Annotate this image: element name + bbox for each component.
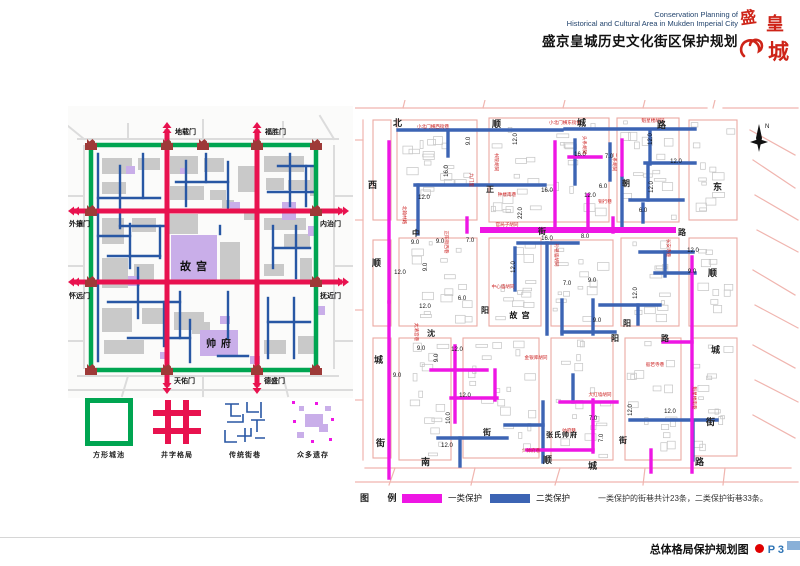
- building-block: [166, 214, 198, 234]
- street-width-label: 12.0: [418, 195, 430, 201]
- street-width-label: 9.0: [688, 269, 697, 275]
- lane-name-label: 般若寺巷: [646, 361, 665, 368]
- street-width-label: 12.0: [513, 133, 519, 145]
- lane-name-label: 铜行巷: [598, 198, 612, 205]
- street-width-label: 6.0: [639, 208, 648, 214]
- edge-road-char: 北: [393, 117, 402, 128]
- gate-label: 抚近门: [320, 291, 341, 300]
- edge-road-char: 城: [588, 460, 597, 471]
- city-block: [399, 338, 451, 460]
- street-name-char: 阳: [611, 334, 619, 343]
- edge-road-char: 路: [695, 456, 705, 467]
- compass-n-label: N: [765, 124, 769, 130]
- street-width-label: 9.0: [393, 373, 402, 379]
- street-name-char: 街: [482, 427, 491, 437]
- gate-label: 地载门: [175, 127, 196, 136]
- street-width-label: 12.0: [394, 270, 406, 276]
- street-width-label: 12.0: [670, 159, 682, 165]
- street-width-label: 6.0: [599, 184, 608, 190]
- relic-patch: [318, 306, 325, 315]
- street-width-label: 12.0: [419, 304, 431, 310]
- street-width-label: 8.0: [581, 234, 590, 240]
- building-block: [238, 166, 256, 192]
- street-name-char: 正: [486, 185, 494, 194]
- lane-name-label: 二条胡同: [611, 153, 618, 172]
- lane-name-label: 金银库胡同: [525, 354, 548, 361]
- landmark-label: 帅 府: [206, 337, 232, 350]
- edge-road-char: 街: [705, 416, 715, 427]
- street-width-label: 12.0: [664, 409, 676, 415]
- lane-name-label: 九门里: [468, 173, 475, 187]
- street-width-label: 12.0: [687, 248, 699, 254]
- header-english-line2: Historical and Cultural Area in Mukden I…: [378, 19, 738, 28]
- landmark-label: 故 宫: [180, 259, 208, 273]
- shengjing-huangcheng-logo: 盛 皇 城: [738, 4, 794, 70]
- edge-road-char: 城: [577, 117, 586, 128]
- legend-caption: 方形城池: [80, 450, 138, 460]
- lane-name-label: 头条胡同: [581, 136, 588, 155]
- edge-road-char: 顺: [543, 455, 552, 465]
- legend-caption: 众多遗存: [284, 450, 342, 460]
- footer-title: 总体格局保护规划图: [650, 544, 749, 556]
- edge-road-char: 顺: [708, 268, 717, 278]
- gate-label: 怀远门: [68, 291, 90, 300]
- legend-item-lanes: 传统街巷: [216, 398, 274, 460]
- street-width-label: 7.0: [589, 416, 598, 422]
- gate-label: 福胜门: [264, 127, 286, 136]
- street-name-char: 阳: [623, 319, 631, 328]
- gate-label: 外攘门: [69, 219, 90, 228]
- street-name-char: 路: [678, 227, 687, 237]
- lane-name-label: 钟楼南巷: [498, 191, 517, 198]
- grid-swatch: [153, 398, 201, 446]
- logo-char-sheng: 盛: [738, 3, 757, 29]
- building-block: [102, 182, 126, 194]
- lane-name-label: 北翰林路: [401, 206, 408, 225]
- street-name-char: 朝: [622, 178, 630, 188]
- relic-patch: [126, 166, 135, 174]
- building-block: [266, 178, 284, 190]
- building-block: [298, 336, 314, 354]
- lane-name-label: 书院胡同: [493, 153, 500, 172]
- street-width-label: 12.0: [633, 287, 639, 299]
- street-name-char: 阳: [481, 306, 489, 315]
- edge-road-char: 南: [421, 456, 430, 467]
- landmark-label: 故 宫: [509, 310, 530, 320]
- logo-char-huang: 皇: [766, 10, 784, 36]
- city-block: [625, 338, 681, 460]
- footer-blue-bar: [787, 541, 800, 550]
- street-width-label: 16.0: [541, 188, 553, 194]
- legend-item-square: 方形城池: [80, 398, 138, 460]
- street-width-label: 9.0: [588, 278, 597, 284]
- legend-item-relics: 众多遗存: [284, 398, 342, 460]
- street-width-label: 9.0: [423, 262, 429, 271]
- header-english-line1: Conservation Planning of: [378, 10, 738, 19]
- protection-plan-map: 9.012.016.07.012.012.016.012.016.012.06.…: [355, 100, 800, 490]
- footer: 总体格局保护规划图P 3: [650, 541, 784, 557]
- building-block: [300, 258, 312, 282]
- schematic-city-map: 地载门福胜门外攘门内治门怀远门抚近门天佑门德盛门故 宫帅 府: [68, 106, 353, 398]
- class1-label: 一类保护: [448, 493, 482, 503]
- footer-red-dot-icon: [755, 544, 764, 553]
- street-width-label: 12.0: [584, 193, 596, 199]
- logo-swirl-icon: [738, 34, 764, 62]
- lane-name-label: 正阳街西巷: [443, 231, 450, 254]
- street-width-label: 12.0: [459, 393, 471, 399]
- street-width-label: 9.0: [466, 136, 472, 145]
- street-width-label: 16.0: [541, 236, 553, 242]
- relics-swatch: [289, 398, 337, 446]
- square-swatch: [85, 398, 133, 446]
- landmark-label: 张氏帅府: [546, 430, 578, 439]
- logo-char-cheng: 城: [768, 36, 789, 66]
- legend-caption: 井字格局: [148, 450, 206, 460]
- legend-caption: 传统街巷: [216, 450, 274, 460]
- street-width-label: 9.0: [593, 318, 602, 324]
- street-name-char: 中: [412, 228, 420, 238]
- city-block: [397, 120, 477, 220]
- city-block: [399, 238, 477, 326]
- footer-divider: [0, 537, 800, 538]
- class1-color-swatch: [402, 494, 442, 503]
- building-block: [264, 156, 304, 172]
- street-name-char: 沈: [427, 328, 435, 338]
- lane-name-label: 官局子胡同: [496, 221, 519, 228]
- lane-name-label: 中心庙胡同: [492, 283, 515, 290]
- edge-road-char: 顺: [372, 258, 381, 268]
- street-width-label: 9.0: [417, 346, 426, 352]
- header: Conservation Planning of Historical and …: [378, 10, 738, 50]
- city-block: [551, 240, 613, 326]
- building-block: [104, 340, 144, 354]
- edge-road-char: 城: [711, 344, 720, 355]
- lane-name-label: 魁星楼南巷: [691, 387, 698, 410]
- street-name-char: 街: [537, 226, 546, 236]
- street-width-label: 12.0: [511, 261, 517, 273]
- legend-note: 一类保护的街巷共计23条，二类保护街巷33条。: [598, 493, 768, 504]
- street-width-label: 6.0: [458, 296, 467, 302]
- street-width-label: 12.0: [441, 443, 453, 449]
- street-width-label: 22.0: [518, 207, 524, 219]
- street-width-label: 16.0: [444, 165, 450, 177]
- street-width-label: 12.0: [648, 133, 654, 145]
- building-block: [220, 242, 240, 282]
- street-width-label: 12.0: [649, 181, 655, 193]
- edge-road-char: 路: [657, 119, 667, 130]
- legend-item-class2: 二类保护: [490, 492, 570, 504]
- legend-item-grid: 井字格局: [148, 398, 206, 460]
- page-title: 盛京皇城历史文化街区保护规划: [378, 30, 738, 50]
- lane-name-label: 大红墙胡同: [589, 391, 612, 398]
- street-width-label: 9.0: [436, 239, 445, 245]
- edge-road-char: 西: [368, 180, 377, 190]
- lane-name-label: 小北门横西街巷: [417, 123, 450, 130]
- street-name-char: 路: [661, 333, 670, 343]
- map-legend: 图 例 一类保护 二类保护 一类保护的街巷共计23条，二类保护街巷33条。: [360, 491, 796, 507]
- concept-legend: 方形城池 井字格局 传统街巷 众多遗存: [80, 398, 342, 460]
- building-block: [210, 190, 226, 200]
- street-width-label: 7.0: [563, 281, 572, 287]
- street-width-label: 9.0: [411, 240, 420, 246]
- street-name-char: 街: [618, 435, 627, 445]
- relic-patch-large: [171, 235, 217, 281]
- gate-label: 天佑门: [174, 376, 195, 385]
- lanes-swatch: [221, 398, 269, 446]
- legend-item-class1: 一类保护: [402, 492, 482, 504]
- street-width-label: 10.0: [446, 412, 452, 424]
- street-width-label: 9.0: [434, 353, 440, 362]
- edge-road-char: 东: [713, 181, 722, 192]
- gate-label: 德盛门: [264, 376, 285, 385]
- edge-road-char: 顺: [492, 119, 501, 129]
- legend-title: 图 例: [360, 493, 405, 503]
- street-width-label: 7.0: [466, 238, 475, 244]
- building-block: [102, 308, 132, 332]
- building-block: [138, 158, 160, 170]
- class2-color-swatch: [490, 494, 530, 503]
- gate-label: 内治门: [320, 219, 341, 228]
- lane-name-label: 太清宫巷: [413, 323, 420, 342]
- lane-name-label: 少帅府巷: [522, 447, 541, 454]
- street-width-label: 7.0: [599, 433, 605, 442]
- class2-label: 二类保护: [536, 493, 570, 503]
- edge-road-char: 街: [375, 437, 385, 448]
- footer-page-number: P 3: [768, 544, 784, 556]
- edge-road-char: 城: [374, 354, 383, 365]
- street-width-label: 12.0: [628, 404, 634, 416]
- lane-name-label: 孙祖庙胡同: [553, 244, 560, 267]
- lane-name-label: 长安寺巷: [665, 239, 672, 258]
- street-width-label: 12.0: [451, 347, 463, 353]
